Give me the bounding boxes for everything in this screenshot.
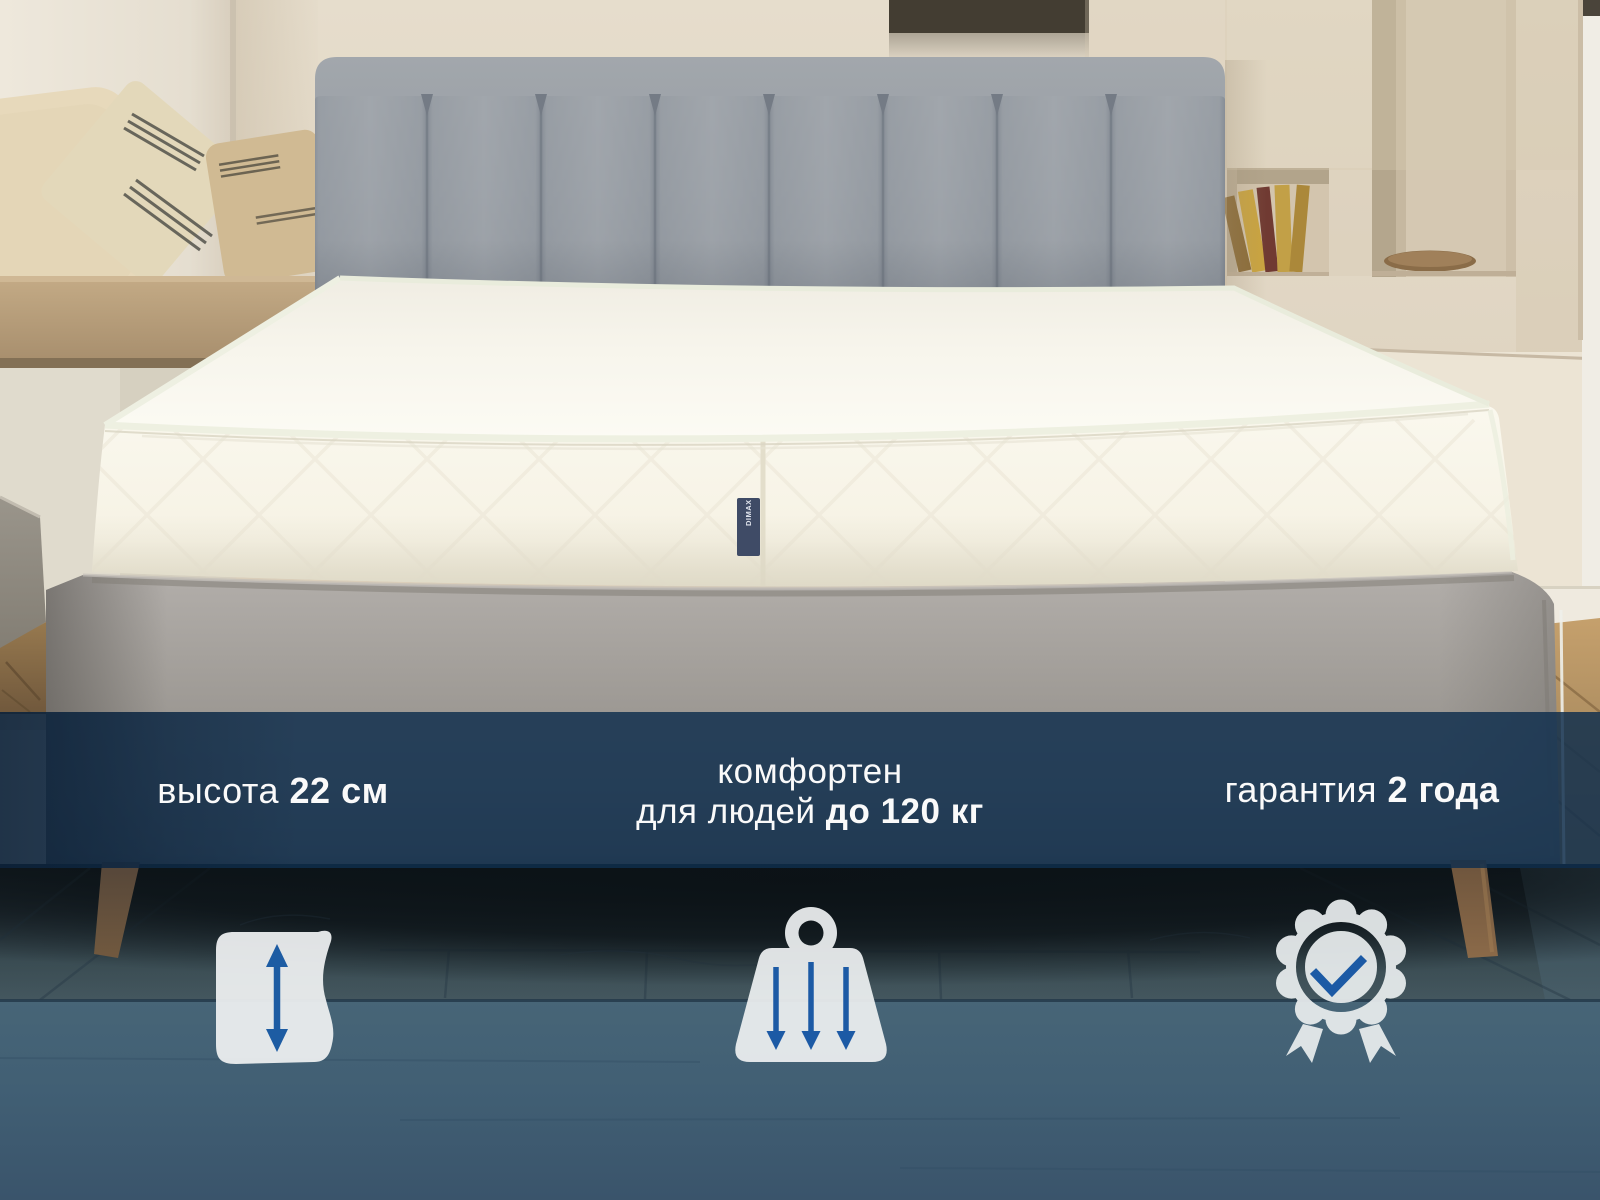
svg-text:DIMAX: DIMAX — [744, 499, 753, 526]
